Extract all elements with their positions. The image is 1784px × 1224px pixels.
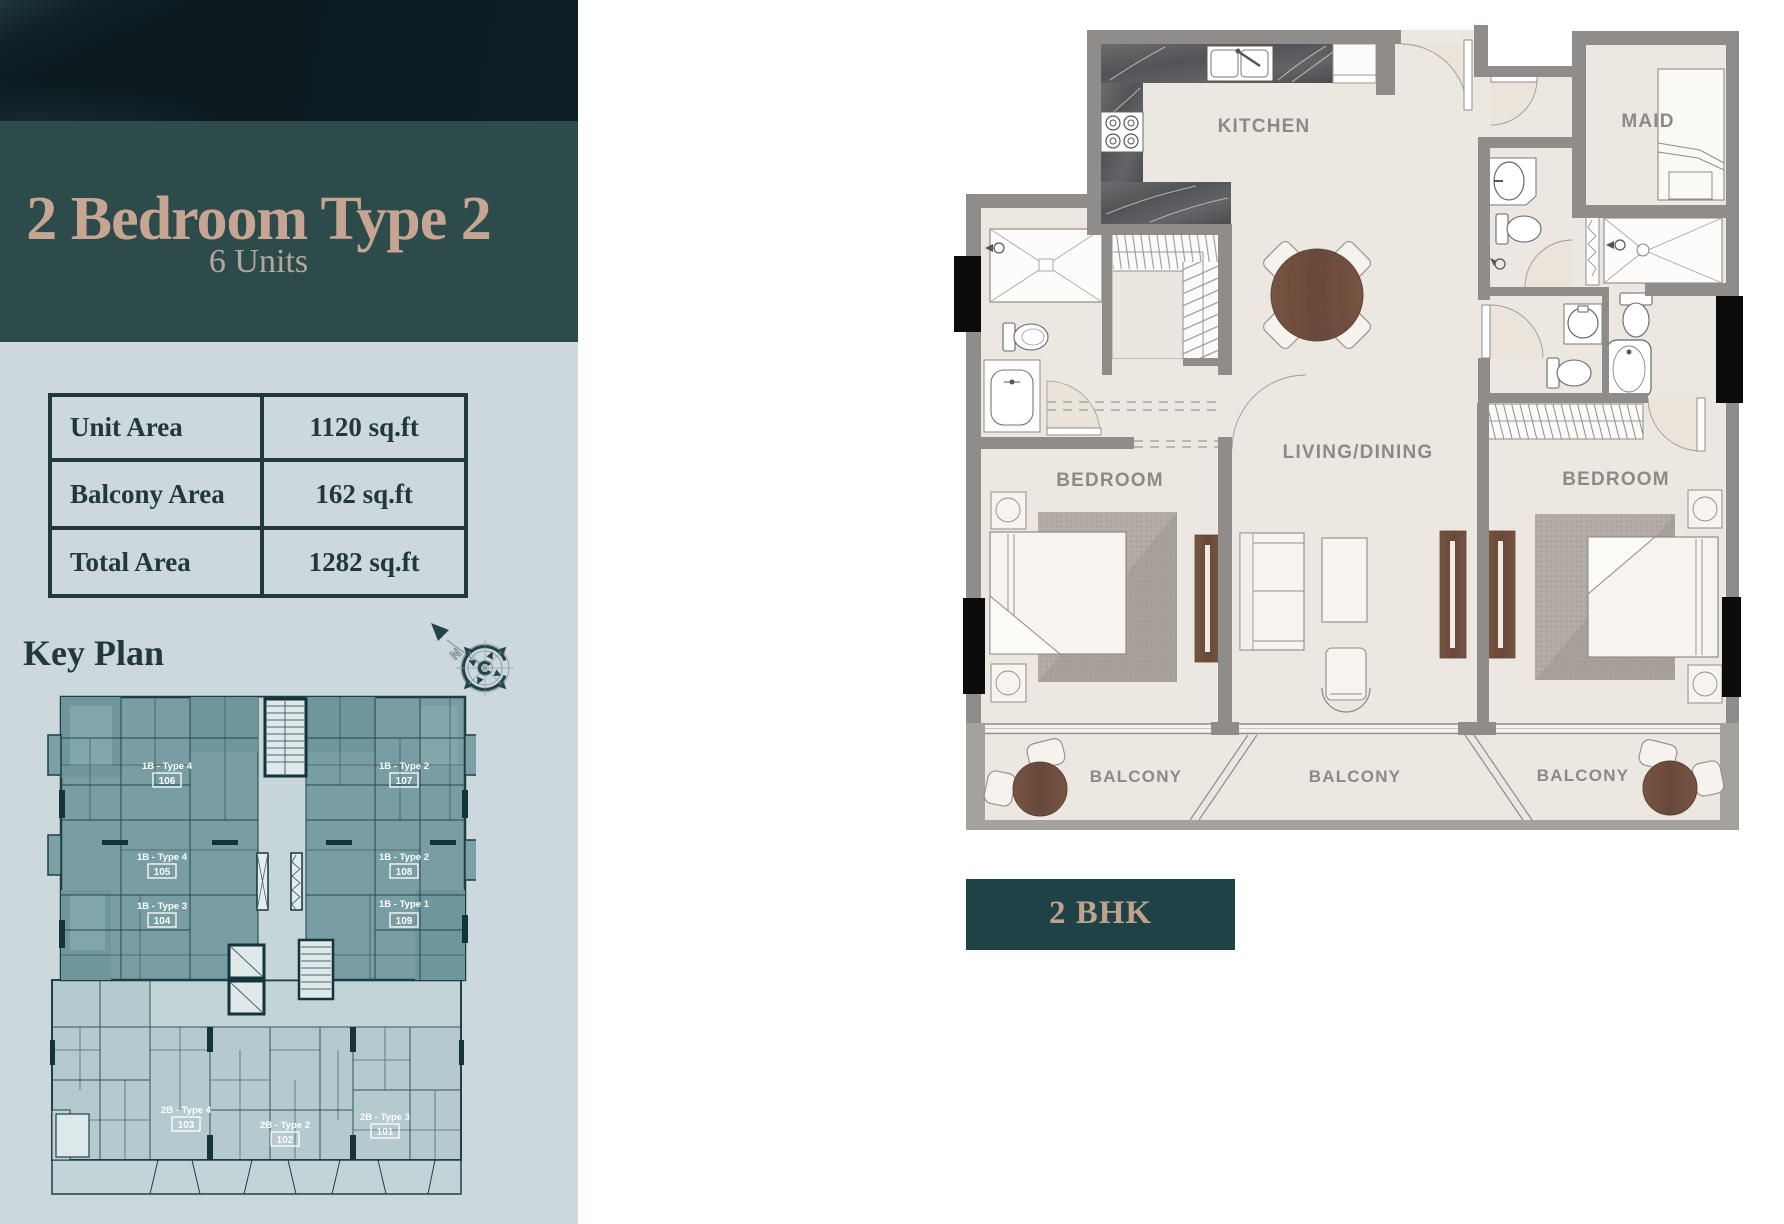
svg-text:104: 104 [154,916,171,927]
svg-text:1B - Type 1: 1B - Type 1 [379,899,430,910]
svg-text:101: 101 [377,1127,394,1138]
svg-text:2B - Type 3: 2B - Type 3 [360,1112,410,1123]
svg-text:1B - Type 4: 1B - Type 4 [137,852,188,863]
svg-text:MAID: MAID [1621,111,1674,132]
svg-text:107: 107 [396,776,413,787]
svg-text:N: N [447,645,464,662]
svg-text:BEDROOM: BEDROOM [1056,470,1164,491]
svg-text:109: 109 [396,916,413,927]
svg-text:BEDROOM: BEDROOM [1562,469,1670,490]
svg-text:106: 106 [159,776,176,787]
svg-text:103: 103 [178,1120,195,1131]
svg-text:2B - Type 4: 2B - Type 4 [161,1105,212,1116]
svg-text:BALCONY: BALCONY [1537,766,1629,785]
svg-text:1B - Type 4: 1B - Type 4 [142,761,193,772]
svg-text:BALCONY: BALCONY [1090,767,1182,786]
svg-text:LIVING/DINING: LIVING/DINING [1283,442,1434,463]
svg-text:108: 108 [396,867,413,878]
svg-text:2B - Type 2: 2B - Type 2 [260,1120,310,1131]
svg-text:105: 105 [154,867,171,878]
svg-text:1B - Type 2: 1B - Type 2 [379,761,429,772]
svg-text:102: 102 [277,1135,294,1146]
svg-text:1B - Type 2: 1B - Type 2 [379,852,429,863]
svg-text:1B - Type 3: 1B - Type 3 [137,901,187,912]
svg-text:KITCHEN: KITCHEN [1218,116,1311,137]
svg-text:BALCONY: BALCONY [1309,767,1401,786]
